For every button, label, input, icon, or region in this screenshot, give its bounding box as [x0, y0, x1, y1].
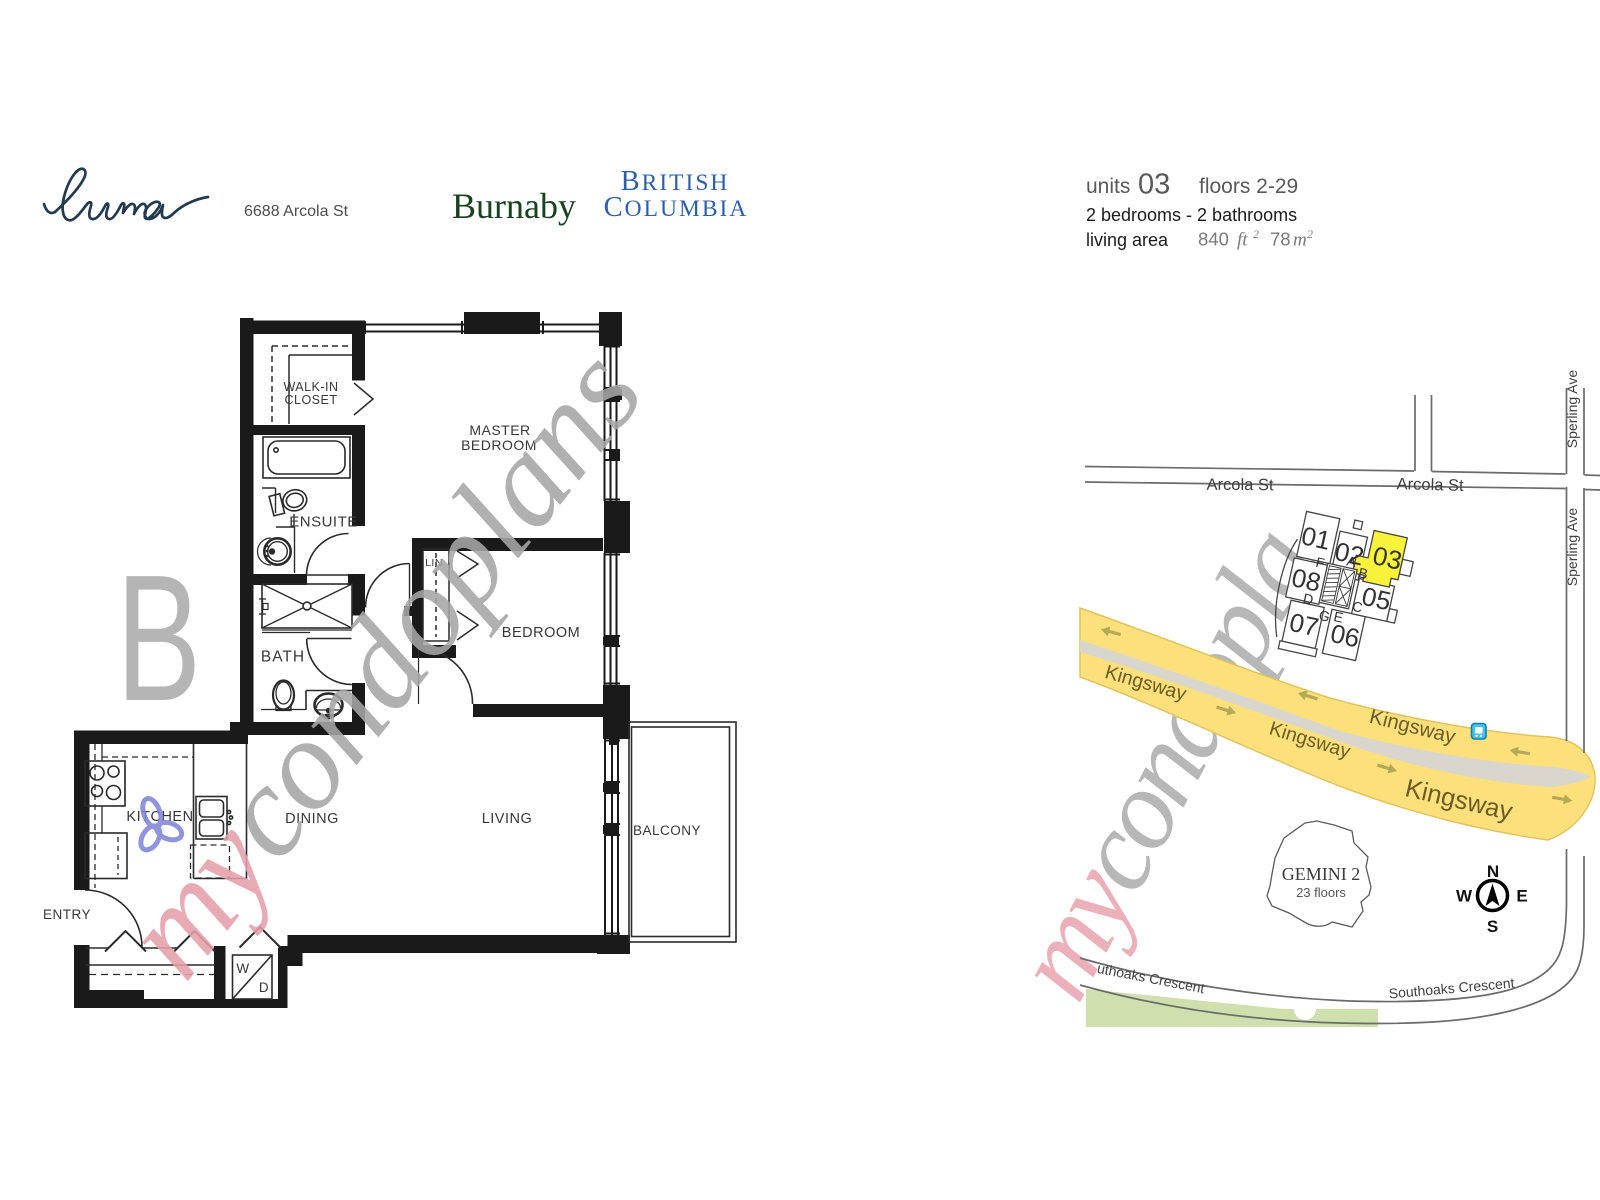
svg-text:W: W [1456, 887, 1473, 906]
svg-text:2 bedrooms - 2 bathrooms: 2 bedrooms - 2 bathrooms [1086, 205, 1297, 225]
svg-text:BEDROOM: BEDROOM [502, 625, 580, 641]
svg-text:B: B [116, 539, 201, 740]
svg-text:ENTRY: ENTRY [43, 907, 91, 922]
svg-text:Arcola St: Arcola St [1396, 475, 1464, 495]
svg-text:23 floors: 23 floors [1296, 885, 1346, 900]
svg-text:D: D [259, 980, 269, 995]
svg-text:03: 03 [1138, 169, 1170, 201]
svg-text:Burnaby: Burnaby [452, 186, 576, 226]
svg-text:living area: living area [1086, 230, 1169, 250]
svg-text:Arcola St: Arcola St [1206, 476, 1274, 495]
svg-text:E: E [1516, 887, 1527, 906]
svg-text:LIVING: LIVING [482, 811, 533, 827]
svg-text:6688 Arcola St: 6688 Arcola St [244, 203, 349, 220]
svg-text:N: N [1487, 862, 1499, 881]
svg-text:COLUMBIA: COLUMBIA [604, 192, 749, 223]
svg-text:BALCONY: BALCONY [633, 823, 701, 838]
svg-text:840: 840 [1198, 229, 1229, 250]
svg-text:Sperling Ave: Sperling Ave [1564, 370, 1580, 449]
svg-text:Sperling Ave: Sperling Ave [1564, 508, 1580, 587]
svg-text:CLOSET: CLOSET [284, 393, 337, 407]
svg-text:2: 2 [1307, 227, 1313, 241]
svg-text:78: 78 [1270, 229, 1291, 250]
svg-text:ft: ft [1237, 230, 1248, 251]
svg-text:ENSUITE: ENSUITE [289, 514, 358, 531]
svg-text:units: units [1086, 175, 1130, 198]
svg-text:WALK-IN: WALK-IN [283, 380, 338, 394]
svg-text:S: S [1487, 917, 1498, 936]
svg-text:GEMINI 2: GEMINI 2 [1282, 864, 1361, 884]
svg-text:2: 2 [1253, 227, 1259, 241]
svg-text:BRITISH: BRITISH [621, 166, 730, 197]
svg-text:floors 2-29: floors 2-29 [1199, 175, 1298, 198]
svg-text:m: m [1293, 230, 1307, 251]
